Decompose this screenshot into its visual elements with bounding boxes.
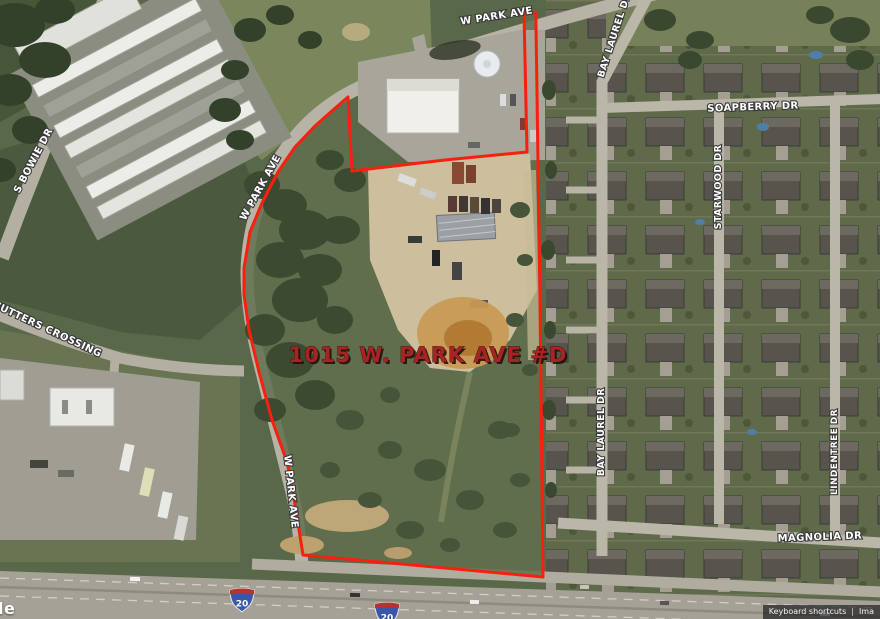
shield-number: 20	[236, 600, 249, 610]
google-logo-partial[interactable]: le	[0, 599, 15, 618]
map-canvas[interactable]: W PARK AVE S BOWIE DR W PARK AVE CUTTERS…	[0, 0, 880, 619]
attribution-separator: |	[851, 605, 854, 619]
map-viewport: W PARK AVE S BOWIE DR W PARK AVE CUTTERS…	[0, 0, 880, 619]
label-bay-laurel-dr-mid: BAY LAUREL DR	[596, 388, 607, 477]
label-lindentree-dr: LINDENTREE DR	[830, 409, 840, 495]
property-address-label: 1015 W. PARK AVE #D 1015 W. PARK AVE #D	[289, 343, 570, 369]
gas-canopy	[50, 388, 114, 426]
map-attribution: Keyboard shortcuts | Ima	[763, 605, 880, 619]
label-starwood-dr: STARWOOD DR	[713, 144, 724, 229]
interstate-shield-2: 20	[375, 603, 399, 619]
property-address: 1015 W. PARK AVE #D	[289, 343, 568, 367]
imagery-link-partial[interactable]: Ima	[859, 605, 874, 619]
keyboard-shortcuts-link[interactable]: Keyboard shortcuts	[769, 605, 846, 619]
shield-number: 20	[381, 614, 394, 619]
truck-stop	[0, 358, 200, 541]
